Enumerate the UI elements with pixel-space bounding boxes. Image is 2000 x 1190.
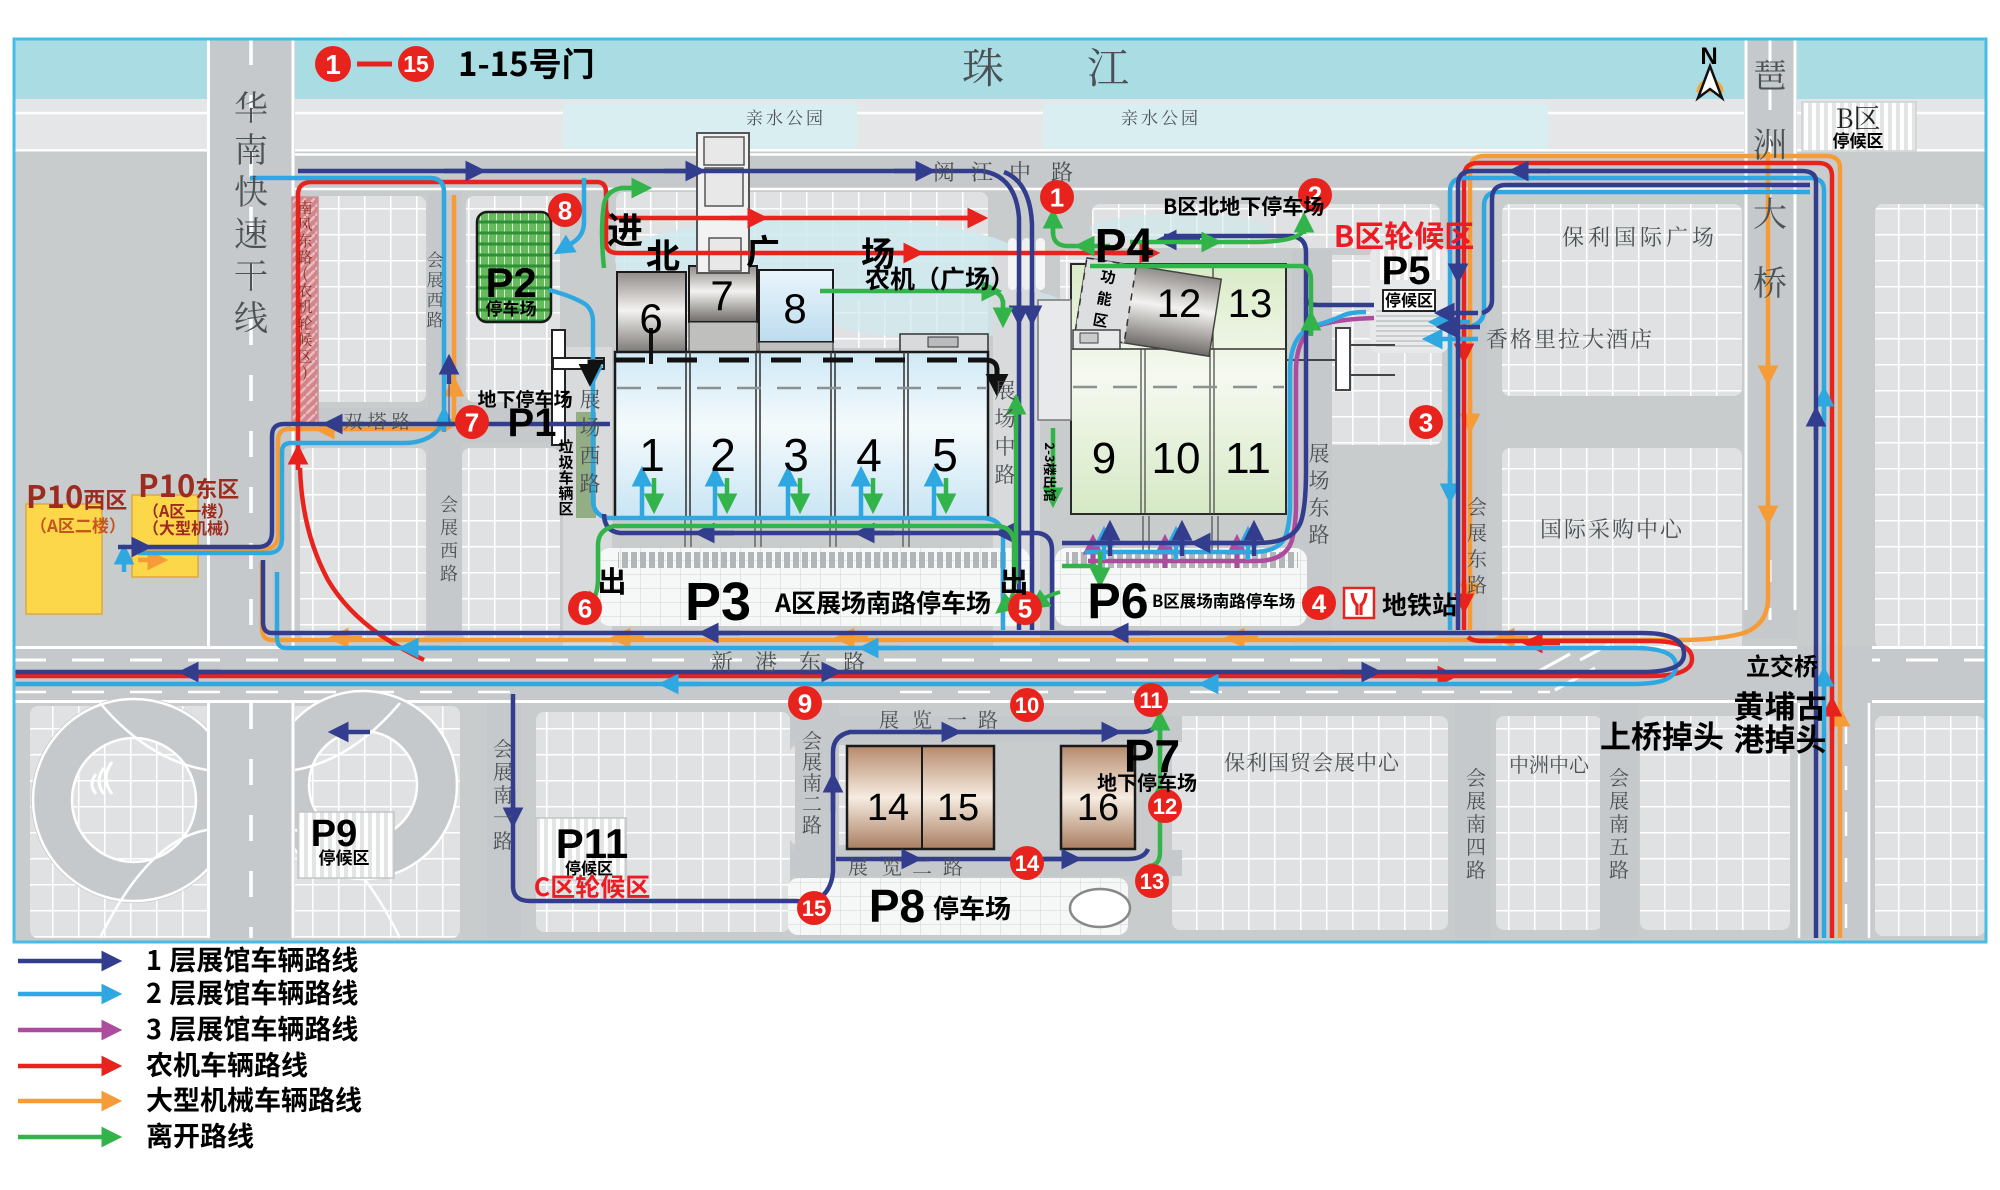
svg-text:): ) [302,362,307,383]
svg-text:停候区: 停候区 [1833,127,1884,152]
svg-text:地下停车场: 地下停车场 [1097,767,1197,796]
svg-text:4: 4 [856,429,882,481]
svg-text:13: 13 [1140,869,1164,894]
svg-text:B区展场南路停车场: B区展场南路停车场 [1152,588,1295,612]
svg-text:展: 展 [1467,517,1487,546]
svg-text:路: 路 [843,646,865,677]
svg-text:路: 路 [802,809,822,838]
svg-text:14: 14 [867,787,909,829]
svg-text:C区轮候区: C区轮候区 [534,868,650,904]
svg-text:（A区二楼）: （A区二楼） [30,512,126,537]
svg-text:香格里拉大酒店: 香格里拉大酒店 [1486,323,1654,354]
svg-text:7: 7 [710,272,733,319]
svg-text:6: 6 [578,593,592,623]
svg-text:场: 场 [580,412,601,442]
svg-text:中洲中心: 中洲中心 [1509,749,1590,778]
svg-text:东: 东 [799,646,821,677]
svg-text:2-3楼出馆: 2-3楼出馆 [1041,442,1060,501]
svg-text:1-15号门: 1-15号门 [458,38,595,86]
svg-text:江: 江 [1087,36,1129,96]
svg-text:2: 2 [710,429,736,481]
svg-text:A区展场南路停车场: A区展场南路停车场 [774,584,991,620]
svg-text:P8: P8 [869,880,925,932]
svg-text:北: 北 [646,229,680,278]
svg-text:9: 9 [1092,434,1116,483]
svg-text:进: 进 [607,202,643,254]
svg-text:停候区: 停候区 [319,844,370,869]
svg-text:6: 6 [639,295,662,342]
svg-text:10: 10 [1015,693,1039,718]
svg-text:览: 览 [882,851,902,880]
svg-text:线: 线 [234,291,268,340]
svg-text:琶: 琶 [1753,49,1787,98]
svg-text:离开路线: 离开路线 [146,1115,254,1154]
svg-text:5: 5 [932,429,958,481]
svg-text:上桥掉头: 上桥掉头 [1600,712,1724,757]
svg-text:一: 一 [947,704,967,733]
svg-text:桥: 桥 [1753,256,1787,305]
svg-text:展: 展 [580,384,601,414]
svg-text:路: 路 [580,468,601,498]
svg-text:中: 中 [1009,156,1031,187]
svg-text:路: 路 [1466,854,1486,883]
svg-text:西: 西 [580,440,601,470]
svg-text:大: 大 [1753,187,1787,236]
svg-text:13: 13 [1228,282,1273,326]
svg-text:阅: 阅 [933,156,955,187]
svg-text:港: 港 [755,646,777,677]
svg-text:塔: 塔 [367,407,386,434]
svg-text:江: 江 [971,156,993,187]
svg-text:大型机械车辆路线: 大型机械车辆路线 [146,1079,362,1118]
svg-text:农机车辆路线: 农机车辆路线 [146,1044,308,1083]
svg-text:路: 路 [1051,156,1073,187]
svg-text:东: 东 [1467,543,1487,572]
svg-text:停候区: 停候区 [1385,287,1433,311]
svg-text:地铁站: 地铁站 [1382,586,1457,622]
svg-text:10: 10 [1152,434,1201,483]
svg-text:场: 场 [995,403,1016,433]
svg-text:路: 路 [943,851,963,880]
svg-text:路: 路 [391,407,410,434]
svg-text:亲水公园: 亲水公园 [1121,104,1201,129]
svg-text:15: 15 [802,896,826,921]
svg-text:路: 路 [995,459,1016,489]
svg-text:珠: 珠 [962,36,1004,96]
svg-text:双: 双 [343,407,362,434]
svg-text:12: 12 [1157,282,1202,326]
svg-text:12: 12 [1153,794,1177,819]
svg-text:展: 展 [879,704,899,733]
svg-text:路: 路 [1609,854,1629,883]
svg-text:二: 二 [912,851,932,880]
svg-text:P6: P6 [1087,573,1148,629]
svg-text:路: 路 [1467,569,1487,598]
svg-text:3: 3 [1419,407,1433,437]
svg-text:15: 15 [937,787,979,829]
svg-text:展: 展 [848,851,868,880]
svg-text:港掉头: 港掉头 [1734,715,1827,760]
svg-text:区: 区 [558,498,573,519]
svg-text:路: 路 [440,560,458,586]
svg-text:9: 9 [798,688,812,718]
svg-text:展: 展 [995,375,1016,405]
svg-text:3: 3 [783,429,809,481]
svg-text:农机（广场）: 农机（广场） [865,260,1015,296]
svg-text:8: 8 [783,285,806,332]
svg-text:国际采购中心: 国际采购中心 [1540,513,1684,544]
svg-text:新: 新 [711,646,733,677]
svg-text:出: 出 [999,559,1028,601]
svg-text:展: 展 [1309,438,1330,468]
svg-text:B区北地下停车场: B区北地下停车场 [1163,191,1324,221]
svg-text:路: 路 [427,306,444,331]
svg-text:P3: P3 [685,572,751,632]
svg-text:停车场: 停车场 [933,889,1011,926]
svg-text:P4: P4 [1095,220,1154,273]
svg-text:11: 11 [1139,688,1162,713]
svg-text:场: 场 [1309,465,1330,495]
svg-text:1: 1 [325,49,341,80]
svg-text:8: 8 [558,195,572,225]
svg-text:中: 中 [995,431,1016,461]
svg-text:11: 11 [1225,434,1271,483]
svg-text:出: 出 [597,559,626,601]
svg-text:停车场: 停车场 [486,295,537,320]
svg-text:亲水公园: 亲水公园 [746,104,826,129]
svg-text:1: 1 [639,429,665,481]
svg-text:保利国贸会展中心: 保利国贸会展中心 [1224,747,1400,777]
svg-text:路: 路 [978,704,998,733]
svg-text:路: 路 [1309,519,1330,549]
svg-text:路: 路 [493,825,513,854]
svg-text:P1: P1 [508,401,557,445]
svg-text:览: 览 [912,704,932,733]
svg-text:保利国际广场: 保利国际广场 [1562,221,1718,252]
svg-text:立交桥: 立交桥 [1746,647,1818,682]
svg-text:3 层展馆车辆路线: 3 层展馆车辆路线 [146,1008,358,1047]
svg-text:2 层展馆车辆路线: 2 层展馆车辆路线 [146,972,358,1011]
svg-text:4: 4 [1312,588,1327,618]
svg-text:东: 东 [1309,492,1330,522]
svg-text:15: 15 [403,51,429,77]
svg-text:会: 会 [1467,491,1487,520]
svg-text:（大型机械）: （大型机械） [143,515,239,539]
svg-text:14: 14 [1015,851,1040,876]
svg-text:洲: 洲 [1753,118,1787,167]
svg-text:广: 广 [746,225,780,274]
